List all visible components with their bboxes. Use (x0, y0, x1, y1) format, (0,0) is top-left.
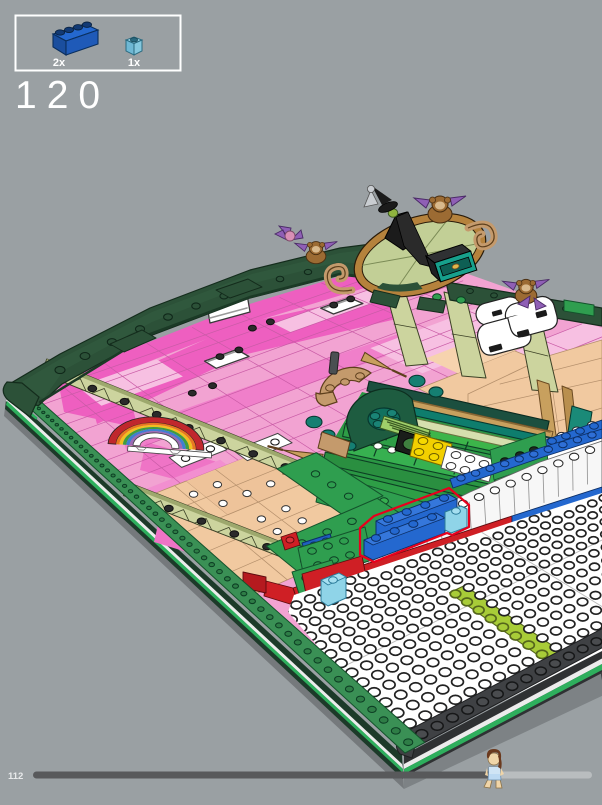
svg-text:112: 112 (8, 771, 23, 782)
svg-text:1x: 1x (128, 57, 141, 69)
svg-text:120: 120 (15, 74, 110, 117)
svg-text:2x: 2x (53, 57, 66, 69)
